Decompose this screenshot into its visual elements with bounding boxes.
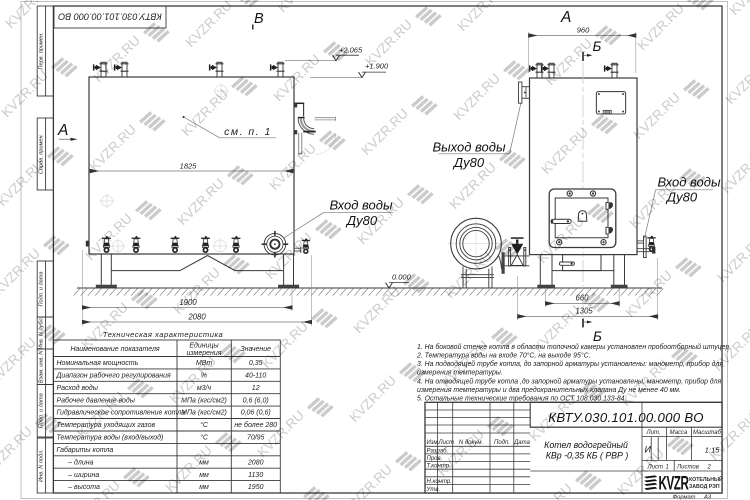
svg-text:Габариты котла: Габариты котла: [57, 446, 114, 454]
svg-text:измерения: измерения: [186, 350, 221, 357]
svg-text:2080: 2080: [187, 312, 206, 321]
svg-text:не более 280: не более 280: [234, 421, 277, 429]
svg-text:МПа (кгс/см2): МПа (кгс/см2): [181, 410, 227, 417]
svg-text:ЗАВОД РЭП: ЗАВОД РЭП: [689, 484, 720, 490]
svg-text:1130: 1130: [248, 472, 263, 479]
svg-text:Лист: Лист: [438, 440, 454, 446]
svg-text:– высота: – высота: [57, 484, 100, 491]
svg-text:мм: мм: [199, 484, 209, 491]
svg-text:2080: 2080: [247, 459, 264, 466]
svg-text:Дата: Дата: [513, 440, 530, 446]
svg-text:А3: А3: [703, 494, 712, 500]
svg-text:Перв. примен.: Перв. примен.: [39, 32, 45, 69]
svg-text:960: 960: [577, 26, 590, 35]
svg-text:Масса: Масса: [670, 430, 688, 436]
svg-text:Подп.: Подп.: [494, 440, 510, 446]
svg-text:12: 12: [252, 385, 260, 392]
svg-text:Котел водогрейный: Котел водогрейный: [544, 440, 628, 450]
svg-text:2: 2: [707, 465, 712, 471]
svg-text:Взам. инв. N: Взам. инв. N: [39, 350, 45, 384]
svg-text:КОТЕЛЬНЫЙ: КОТЕЛЬНЫЙ: [689, 475, 723, 483]
svg-text:1: 1: [666, 465, 669, 471]
svg-text:Разраб.: Разраб.: [427, 448, 449, 454]
svg-text:0,06 (0,6): 0,06 (0,6): [241, 410, 271, 417]
svg-text:°С: °С: [200, 434, 209, 442]
svg-text:Техническая характеристика: Техническая характеристика: [103, 330, 224, 339]
svg-text:мм: мм: [199, 472, 209, 479]
svg-text:Номинальная мощность: Номинальная мощность: [57, 360, 139, 367]
svg-text:Подп. и дата: Подп. и дата: [39, 271, 45, 306]
svg-text:Листов: Листов: [676, 465, 699, 471]
svg-text:70/95: 70/95: [247, 435, 265, 442]
svg-text:0,6 (6,0): 0,6 (6,0): [243, 397, 269, 404]
svg-text:KVZR: KVZR: [659, 474, 690, 495]
svg-text:Утв.: Утв.: [426, 487, 441, 493]
svg-text:Инв. N подл.: Инв. N подл.: [39, 449, 45, 482]
svg-text:КВр -0,35 КБ ( РВР ): КВр -0,35 КБ ( РВР ): [546, 451, 629, 461]
svg-text:2. Температура воды на входе: 2. Температура воды на входе 70°С, на вы…: [416, 352, 591, 360]
svg-text:Диапазон рабочего регулировани: Диапазон рабочего регулирования: [56, 372, 172, 380]
svg-text:Формат: Формат: [672, 494, 695, 500]
svg-text:1950: 1950: [248, 484, 264, 491]
svg-text:Гидравлическое сопротивление к: Гидравлическое сопротивление котла: [57, 409, 186, 417]
svg-text:А: А: [57, 122, 68, 139]
svg-text:Пров.: Пров.: [427, 456, 443, 462]
svg-text:В: В: [254, 11, 264, 27]
svg-text:1825: 1825: [180, 162, 198, 171]
svg-text:40-110: 40-110: [245, 373, 266, 380]
svg-text:Изм.: Изм.: [427, 440, 440, 446]
svg-text:4. На отводящей трубе котла ,: 4. На отводящей трубе котла ,до запорной…: [417, 377, 722, 385]
svg-text:Расход воды: Расход воды: [57, 384, 99, 392]
svg-text:м3/ч: м3/ч: [197, 385, 212, 392]
svg-text:КВТУ.030.101.00.000 ВО: КВТУ.030.101.00.000 ВО: [58, 12, 162, 22]
svg-text:Лит.: Лит.: [645, 430, 660, 436]
svg-text:см. п. 1: см. п. 1: [224, 126, 272, 138]
svg-text:А: А: [560, 9, 571, 26]
svg-text:Температура уходящих газов: Температура уходящих газов: [57, 421, 156, 429]
svg-text:– ширина: – ширина: [57, 472, 100, 479]
svg-text:– длина: – длина: [57, 458, 94, 466]
svg-text:Единицы: Единицы: [189, 342, 219, 350]
svg-text:Масштаб: Масштаб: [693, 430, 722, 436]
svg-text:Н.контр.: Н.контр.: [427, 479, 452, 485]
svg-text:Б: Б: [593, 329, 602, 344]
svg-text:КВТУ.030.101.00.000 ВО: КВТУ.030.101.00.000 ВО: [548, 410, 704, 425]
svg-text:Выход воды: Выход воды: [432, 140, 506, 155]
svg-text:МПа (кгс/см2): МПа (кгс/см2): [181, 397, 227, 404]
svg-text:°С: °С: [200, 421, 209, 429]
svg-text:Температура воды (вход/выход): Температура воды (вход/выход): [57, 434, 164, 442]
